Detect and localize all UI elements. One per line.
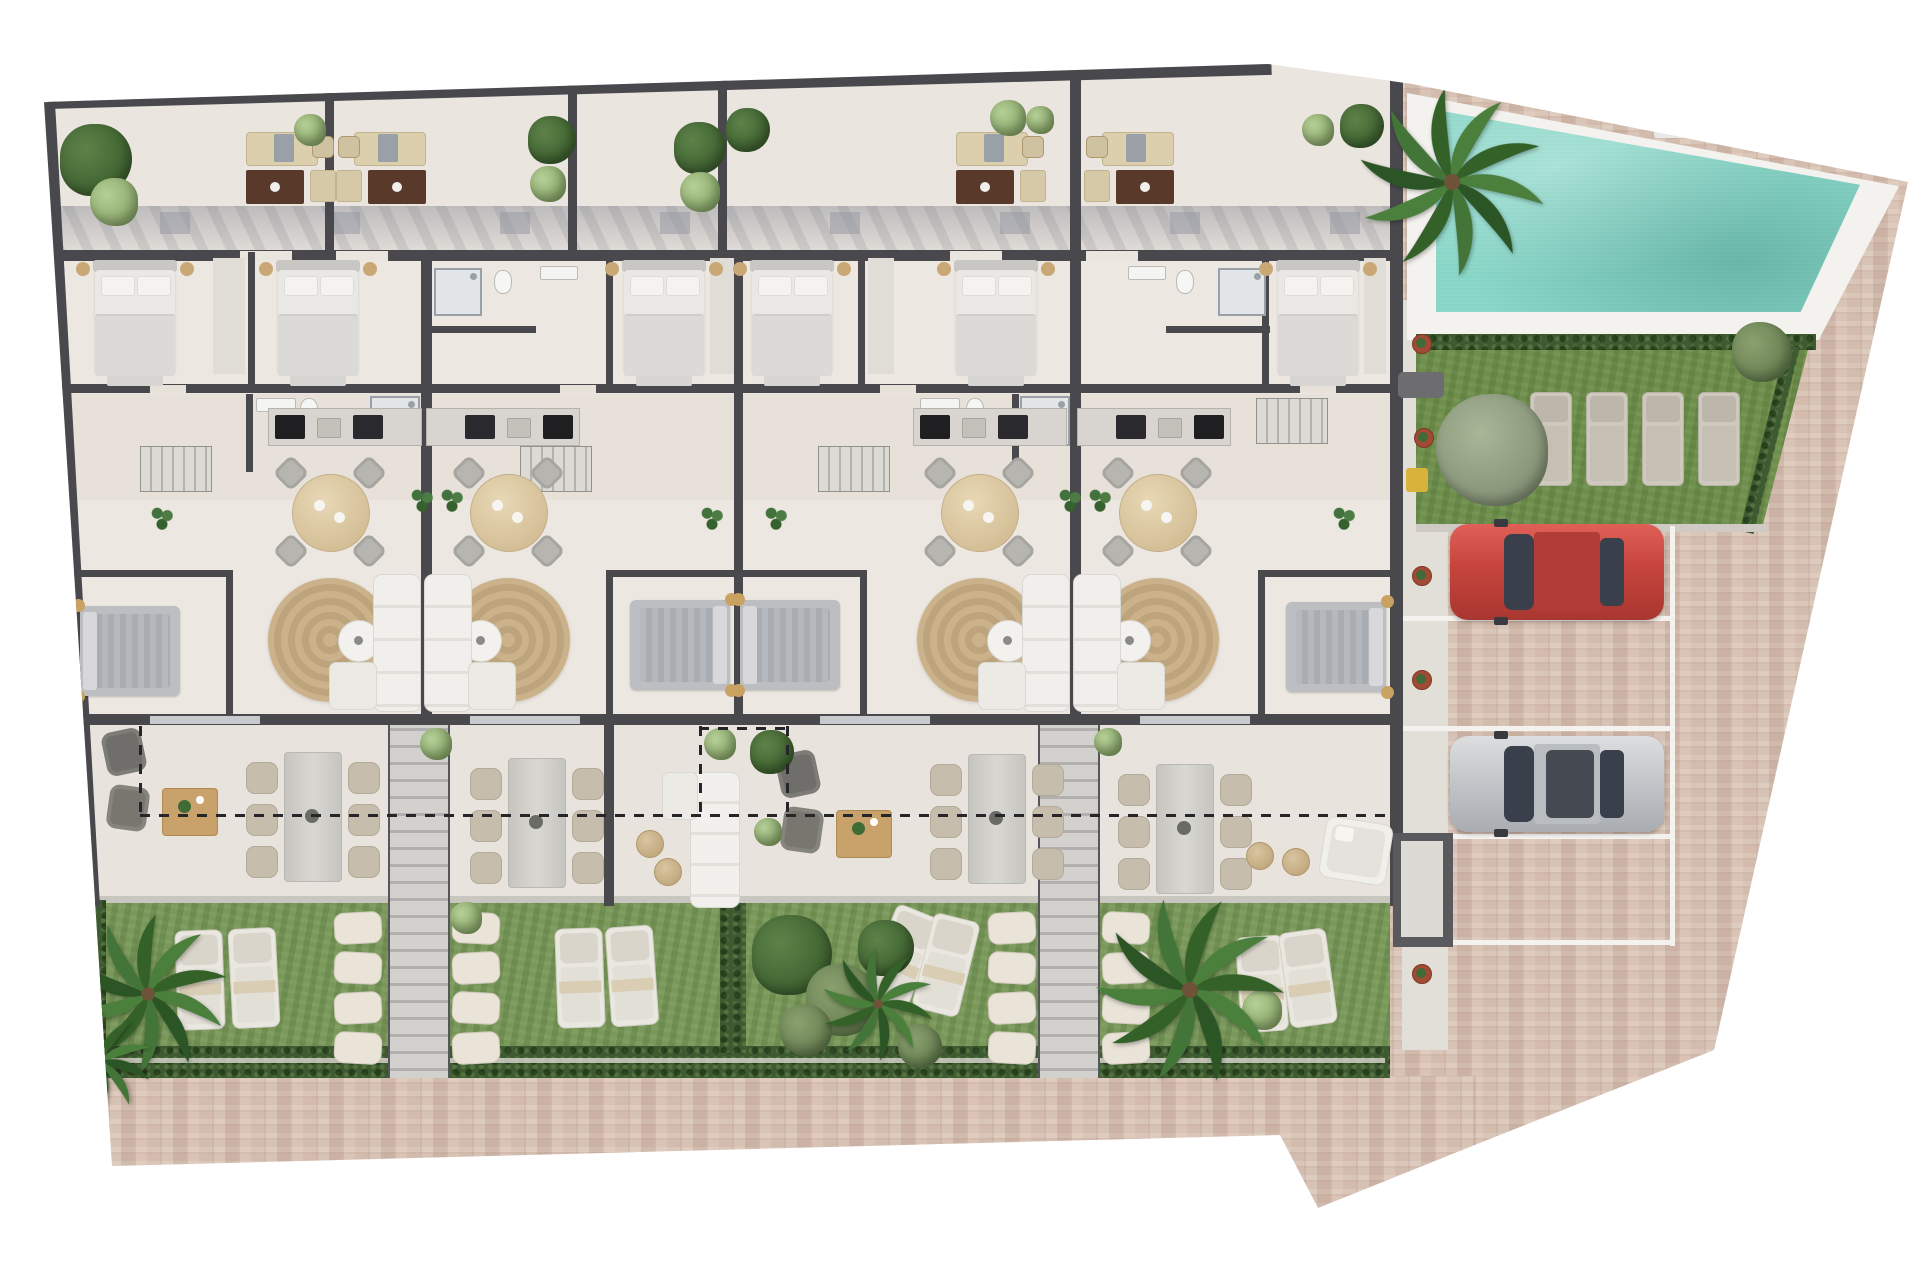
sofa-chaise (468, 662, 516, 710)
double-bed-5 (1276, 260, 1360, 388)
shower-u2 (434, 268, 482, 316)
armchair (336, 170, 362, 202)
plant-pot-97 (1412, 566, 1432, 586)
chair (246, 846, 278, 878)
chair (1032, 764, 1064, 796)
lounger-seat (234, 966, 275, 1023)
plant (852, 822, 865, 835)
chair (930, 848, 962, 880)
outdoor-dining-set-33 (1118, 764, 1250, 892)
grey-bed-8 (740, 600, 840, 690)
bush-86 (1436, 394, 1548, 506)
bed-duvet (624, 314, 704, 376)
nightstand (605, 262, 619, 276)
door-gap-4 (1086, 251, 1138, 261)
car-mirror (1494, 731, 1508, 739)
plate (334, 512, 345, 523)
plant-pot-96 (1414, 428, 1434, 448)
dash-line-h (140, 814, 1390, 817)
shower-u4 (1218, 268, 1266, 316)
sofa-body (1073, 574, 1121, 712)
stone-4 (333, 1031, 383, 1065)
sofa-chaise (329, 662, 377, 710)
chair (1220, 816, 1252, 848)
car-54 (1450, 524, 1664, 620)
pouf (1022, 136, 1044, 158)
sofa-chaise (662, 772, 698, 820)
bed-bench (107, 376, 163, 386)
pouf (732, 684, 745, 697)
bed-pillow (284, 276, 318, 296)
kitchen-counter-26 (268, 408, 422, 446)
car-roof (1534, 532, 1600, 612)
lounger-back (610, 930, 650, 963)
skylight-4 (660, 212, 690, 234)
stone-10 (987, 951, 1037, 985)
kitchen-sink (317, 418, 341, 438)
cooktop (998, 415, 1028, 439)
dining-set-17 (1097, 452, 1217, 572)
pool-lounger-53 (1698, 392, 1740, 486)
bush-85 (1732, 322, 1792, 382)
sink-u2 (540, 266, 578, 280)
bed-duvet (956, 314, 1036, 376)
lounger-back (559, 932, 598, 963)
dining-set-15 (448, 452, 568, 572)
skylight-6 (1000, 212, 1030, 234)
pot-leaves (1416, 674, 1426, 684)
lounger-seat (1702, 426, 1736, 481)
parking-line-v (1670, 526, 1675, 946)
stone-8 (451, 1031, 501, 1065)
double-bed-3 (750, 260, 834, 388)
car-mirror (1494, 519, 1508, 527)
bed-bench (1290, 376, 1346, 386)
l-shaped-sofa-25 (1073, 574, 1165, 710)
armchair (1020, 170, 1046, 202)
grey-bed-9 (1286, 602, 1386, 692)
wall-bedrooms-bottom (56, 384, 1392, 393)
stone-3 (333, 991, 383, 1025)
terrace-sofa-set-13 (1086, 126, 1174, 204)
palm-tree-56 (1336, 66, 1568, 298)
pouf-39 (1246, 842, 1274, 870)
bowl (1177, 821, 1191, 835)
double-bed-4 (954, 260, 1038, 388)
dash-line-v2 (699, 726, 702, 816)
glass-door-4 (1140, 716, 1250, 724)
terrace-sofa-set-12 (956, 126, 1044, 204)
dash-line-v3 (786, 726, 789, 816)
bed-bench (636, 376, 692, 386)
bowl (392, 182, 402, 192)
sofa-throw (1126, 134, 1146, 162)
sun-lounger-43 (227, 927, 280, 1029)
plate (492, 500, 503, 511)
chair (1118, 774, 1150, 806)
plate (983, 512, 994, 523)
bed-blanket (750, 608, 830, 682)
bowl (1140, 182, 1150, 192)
bush-73 (420, 728, 452, 760)
bed-pillow (101, 276, 135, 296)
bed-duvet (95, 314, 175, 376)
stairs-u1 (140, 446, 212, 492)
wall-dbed-u2-h (610, 570, 738, 577)
armchair (310, 170, 336, 202)
dash-line-v1 (139, 726, 142, 816)
toilet-u4 (1176, 270, 1194, 294)
glass-door-1 (150, 716, 260, 724)
pool-lounger-51 (1586, 392, 1628, 486)
kitchen-sink (507, 418, 531, 438)
plant-pot-99 (1412, 964, 1432, 984)
lounger-seat (561, 966, 601, 1022)
terrace-sofa-set-11 (338, 126, 426, 204)
pot-leaves (1416, 338, 1426, 348)
bed-pillow (83, 612, 97, 690)
wall-lower-div (604, 714, 614, 906)
nightstand (837, 262, 851, 276)
wall-terrace-div-3 (718, 80, 727, 254)
round-table (292, 474, 370, 552)
bed-pillow (1284, 276, 1318, 296)
wardrobe-1 (213, 258, 245, 374)
hedge-garden-23 (720, 903, 746, 1053)
day-bed-41 (1318, 815, 1395, 887)
chair (246, 804, 278, 836)
stone-1 (333, 911, 383, 945)
door-gap-6 (560, 385, 596, 393)
wall-bedroom-v3 (858, 252, 865, 393)
skylight-2 (330, 212, 360, 234)
plate (512, 512, 523, 523)
grey-bed-6 (80, 606, 180, 696)
stone-2 (333, 951, 383, 985)
cooktop (465, 415, 495, 439)
sun-lounger-45 (605, 924, 660, 1027)
wall-dbed-u3-h (737, 570, 867, 577)
outdoor-white-sofa-36 (662, 772, 742, 906)
skylight-1 (160, 212, 190, 234)
daybed-pillow (1335, 826, 1355, 843)
sofa-body (1022, 574, 1070, 712)
sofa-throw (274, 134, 294, 162)
glass-door-2 (470, 716, 580, 724)
bush-67 (680, 172, 720, 212)
stairs-u3 (818, 446, 890, 492)
wall-dbed-u3-v (860, 570, 867, 716)
outdoor-dining-set-32 (930, 754, 1062, 882)
chair (1032, 806, 1064, 838)
bush-74 (704, 728, 736, 760)
bed-duvet (752, 314, 832, 376)
lounge-chairs-35 (778, 752, 890, 874)
chair (348, 846, 380, 878)
chair (470, 768, 502, 800)
plant (178, 800, 191, 813)
car-rear-window (1600, 750, 1624, 818)
pouf (72, 690, 85, 703)
cup (196, 796, 204, 804)
stairs-u4 (1256, 398, 1328, 444)
car-mirror (1494, 829, 1508, 837)
bush-76 (754, 818, 782, 846)
pot-leaves (1418, 432, 1428, 442)
lounge-chairs-34 (104, 730, 216, 852)
floorplan-scene (0, 0, 1920, 1280)
pouf (1086, 136, 1108, 158)
lounger-seat (612, 964, 654, 1022)
l-shaped-sofa-22 (327, 574, 419, 710)
car-mirror (1494, 617, 1508, 625)
bush-71 (1302, 114, 1334, 146)
bed-duvet (1278, 314, 1358, 376)
lounger-seat (1646, 426, 1680, 481)
lounger-back (1590, 396, 1624, 422)
plant-pot-98 (1412, 670, 1432, 690)
wood-table (836, 810, 892, 858)
car-windshield (1504, 534, 1534, 610)
pouf (732, 593, 745, 606)
lounger-back (931, 918, 975, 956)
chair (572, 768, 604, 800)
sink-u4 (1128, 266, 1166, 280)
pouf (338, 136, 360, 158)
wall-dbed-u2-v (606, 570, 613, 716)
pot-leaves (1416, 968, 1426, 978)
bed-pillow (758, 276, 792, 296)
bed-pillow (137, 276, 171, 296)
utility-box (1398, 372, 1444, 398)
pouf-40 (1282, 848, 1310, 876)
double-bed-2 (622, 260, 706, 388)
walkway-1 (388, 714, 450, 1078)
sun-lounger-44 (554, 927, 605, 1029)
chair (572, 852, 604, 884)
door-gap-7 (880, 385, 916, 393)
bed-blanket (90, 614, 170, 688)
car-windshield (1504, 746, 1534, 822)
pouf-37 (636, 830, 664, 858)
plate (1161, 512, 1172, 523)
bed-bench (764, 376, 820, 386)
bed-pillow (743, 606, 757, 684)
round-table (470, 474, 548, 552)
cooktop (353, 415, 383, 439)
nightstand (363, 262, 377, 276)
l-shaped-sofa-24 (976, 574, 1068, 710)
car-55 (1450, 736, 1664, 832)
sofa-throw (984, 134, 1004, 162)
skylight-3 (500, 212, 530, 234)
lounge-chair (105, 783, 151, 832)
nightstand (1259, 262, 1273, 276)
bed-pillow (320, 276, 354, 296)
wood-table (162, 788, 218, 836)
potted-plant-87 (150, 506, 174, 530)
palm-icon (1336, 66, 1568, 298)
wall-dbed-u1-h (62, 570, 233, 577)
l-shaped-sofa-23 (424, 574, 516, 710)
bed-bench (968, 376, 1024, 386)
bed-blanket (1296, 610, 1376, 684)
wall-bath-u2 (432, 326, 536, 333)
pouf-38 (654, 858, 682, 886)
bed-pillow (1369, 608, 1383, 686)
potted-plant-89 (440, 488, 464, 512)
lounger-seat (1590, 426, 1624, 481)
chair (246, 762, 278, 794)
stone-6 (451, 951, 501, 985)
pool-lounger-52 (1642, 392, 1684, 486)
potted-plant-93 (1332, 506, 1356, 530)
nightstand (709, 262, 723, 276)
grey-bed-7 (630, 600, 730, 690)
stone-9 (987, 911, 1037, 945)
glass-door-3 (820, 716, 930, 724)
wall-dbed-u4-h (1260, 570, 1392, 577)
bush-70 (1026, 106, 1054, 134)
plant-pot-95 (1412, 334, 1432, 354)
bed-blanket (640, 608, 720, 682)
pouf (72, 599, 85, 612)
lounger-towel (233, 980, 276, 994)
potted-plant-94 (764, 506, 788, 530)
bed-pillow (630, 276, 664, 296)
gate-structure-floor (1401, 841, 1443, 937)
plate (314, 500, 325, 511)
chair (348, 804, 380, 836)
chair (930, 764, 962, 796)
sofa-body (424, 574, 472, 712)
bush-78 (450, 902, 482, 934)
sofa-throw (378, 134, 398, 162)
pool-step-1 (1642, 112, 1718, 126)
sofa-chaise (1117, 662, 1165, 710)
wall-dbed-u1-v (226, 570, 233, 716)
stone-11 (987, 991, 1037, 1025)
bed-pillow (794, 276, 828, 296)
lounger-back (1702, 396, 1736, 422)
bush-63 (294, 114, 326, 146)
bed-pillow (713, 606, 727, 684)
skylight-7 (1170, 212, 1200, 234)
toilet-u2 (494, 270, 512, 294)
pouf (1381, 686, 1394, 699)
yellow-box (1406, 468, 1428, 492)
nightstand (937, 262, 951, 276)
chair (1220, 774, 1252, 806)
cup (870, 818, 878, 826)
kitchen-counter-27 (426, 408, 580, 446)
plate (963, 500, 974, 511)
bush-65 (530, 166, 566, 202)
lounger-towel (559, 980, 601, 993)
bowl (980, 182, 990, 192)
bed-bench (290, 376, 346, 386)
potted-plant-88 (410, 488, 434, 512)
lounger-back (1646, 396, 1680, 422)
wardrobe-3 (868, 258, 894, 374)
stone-7 (451, 991, 501, 1025)
potted-plant-92 (1088, 488, 1112, 512)
round-table (1119, 474, 1197, 552)
armchair (1084, 170, 1110, 202)
bed-pillow (1320, 276, 1354, 296)
wall-bedroom-v1 (248, 252, 255, 393)
dash-line-h2 (699, 727, 789, 730)
double-bed-1 (276, 260, 360, 388)
nightstand (1041, 262, 1055, 276)
cooktop (1116, 415, 1146, 439)
dining-set-14 (270, 452, 390, 572)
nightstand (180, 262, 194, 276)
wall-bath-v1 (246, 394, 253, 472)
double-bed-0 (93, 260, 177, 388)
skylight-5 (830, 212, 860, 234)
kitchen-sink (962, 418, 986, 438)
chair (1118, 816, 1150, 848)
car-rear-window (1600, 538, 1624, 606)
nightstand (259, 262, 273, 276)
pool-step-2 (1654, 126, 1706, 138)
nightstand (733, 262, 747, 276)
potted-plant-90 (700, 506, 724, 530)
bed-pillow (962, 276, 996, 296)
bowl (270, 182, 280, 192)
potted-plant-91 (1058, 488, 1082, 512)
bush-62 (90, 178, 138, 226)
appliance (1194, 415, 1224, 439)
nightstand (76, 262, 90, 276)
chair (348, 762, 380, 794)
appliance (543, 415, 573, 439)
sofa-body (373, 574, 421, 712)
pouf (1381, 595, 1394, 608)
parking-line-2 (1396, 726, 1674, 731)
chair (1032, 848, 1064, 880)
kitchen-counter-29 (1077, 408, 1231, 446)
stone-12 (987, 1031, 1037, 1065)
appliance (920, 415, 950, 439)
bush-77 (1094, 728, 1122, 756)
round-table (941, 474, 1019, 552)
wall-bath-u4 (1166, 326, 1270, 333)
plate (1141, 500, 1152, 511)
kitchen-sink (1158, 418, 1182, 438)
bed-pillow (666, 276, 700, 296)
wall-dbed-u4-v (1258, 570, 1265, 716)
bed-duvet (278, 314, 358, 376)
wall-terrace-div-2 (568, 78, 577, 254)
kitchen-counter-28 (913, 408, 1067, 446)
bush-69 (990, 100, 1026, 136)
chair (470, 852, 502, 884)
outdoor-dining-set-31 (470, 758, 602, 886)
bowl (529, 815, 543, 829)
appliance (275, 415, 305, 439)
dining-set-16 (919, 452, 1039, 572)
car-sunroof (1546, 750, 1594, 818)
bed-pillow (998, 276, 1032, 296)
lounger-back (233, 932, 273, 964)
sofa-chaise (978, 662, 1026, 710)
pot-leaves (1416, 570, 1426, 580)
chair (930, 806, 962, 838)
